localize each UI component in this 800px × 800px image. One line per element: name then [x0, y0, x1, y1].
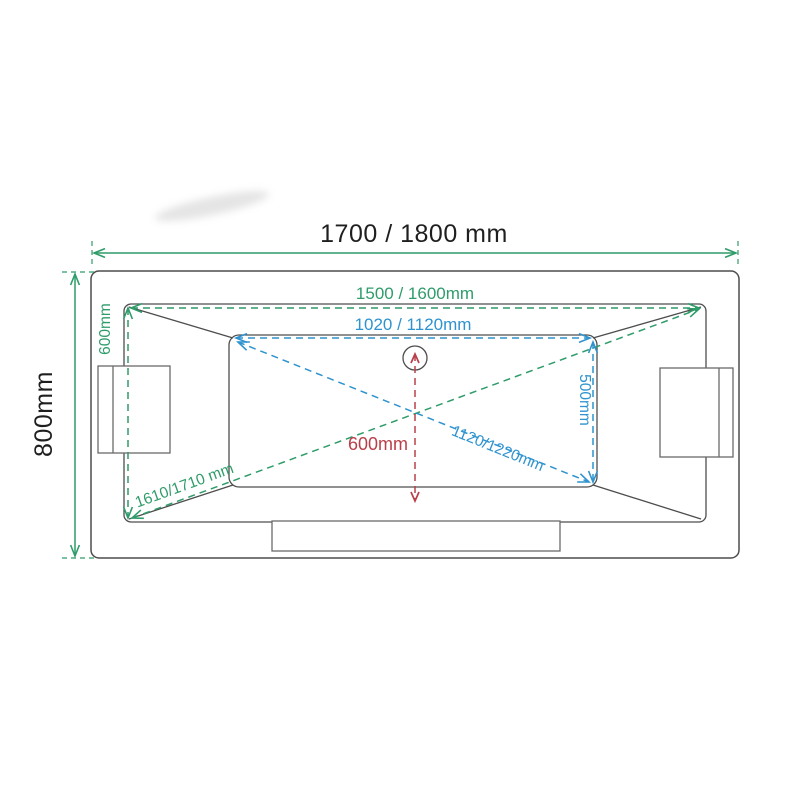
drain-offset-label: 600mm: [348, 434, 408, 454]
overall-length-dimension: 1700 / 1800 mm: [92, 220, 738, 267]
basin-width-label: 500mm: [576, 374, 593, 426]
left-headrest: [98, 366, 170, 453]
basin-width-dimension: 500mm: [576, 342, 593, 482]
wall-slope-top-left: [129, 307, 233, 338]
scan-smudge: [153, 185, 270, 227]
bathtub-dimension-drawing: 1700 / 1800 mm 800mm 1500 / 1600mm 600mm…: [0, 0, 800, 800]
overall-length-label: 1700 / 1800 mm: [320, 220, 508, 248]
rim-width-label: 600mm: [97, 303, 114, 355]
apron-panel: [272, 521, 560, 551]
wall-slope-bottom-right: [593, 485, 701, 519]
rim-length-label: 1500 / 1600mm: [356, 284, 474, 303]
drain-offset-dimension: 600mm: [348, 354, 415, 501]
overall-width-dimension: 800mm: [30, 272, 96, 558]
overall-width-label: 800mm: [30, 371, 58, 457]
basin-length-label: 1020 / 1120mm: [355, 315, 472, 334]
rim-diagonal-label: 1610/1710 mm: [133, 460, 236, 511]
drawing-canvas: 1700 / 1800 mm 800mm 1500 / 1600mm 600mm…: [0, 0, 800, 800]
basin-diagonal-label: 1120/1220mm: [449, 423, 546, 475]
right-headrest: [660, 368, 733, 457]
wall-slope-top-right: [593, 307, 701, 338]
